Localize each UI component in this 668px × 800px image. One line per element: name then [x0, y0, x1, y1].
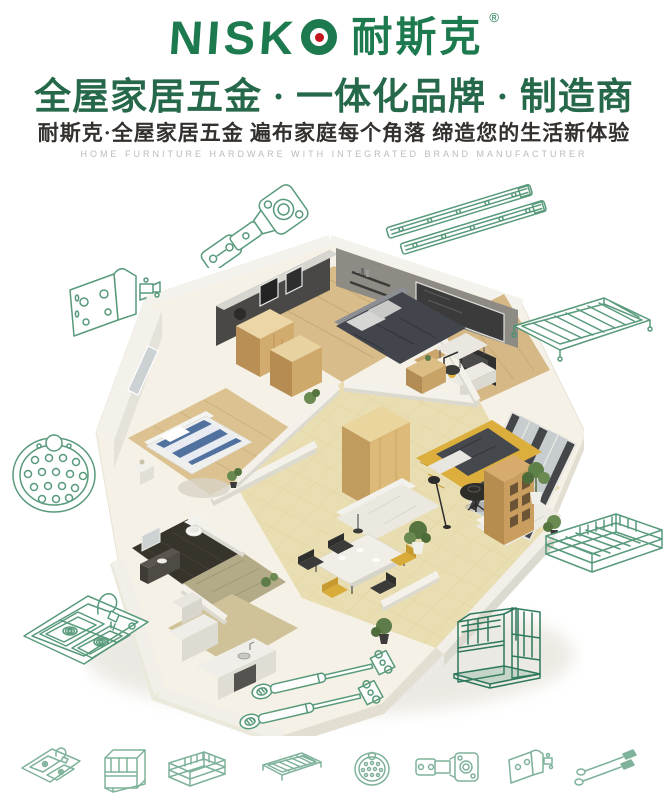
logo-o-mark [301, 19, 337, 55]
wire-shelf-illustration [506, 290, 658, 378]
wire-basket-icon [167, 748, 227, 788]
sink-icon [20, 744, 82, 792]
main-headline: 全屋家居五金 · 一体化品牌 · 制造商 [0, 66, 668, 120]
sink-illustration [16, 584, 154, 700]
brand-logo: NISK 耐斯克 ® [0, 10, 668, 64]
corner-bracket-illustration [56, 262, 170, 348]
wire-basket-illustration [540, 506, 668, 586]
logo-red-dot-icon [315, 33, 324, 42]
registered-trademark-symbol: ® [489, 10, 499, 25]
brand-chinese-name: 耐斯克 [351, 17, 483, 58]
wire-organizer-illustration [448, 586, 546, 694]
concealed-hinge-illustration [170, 182, 328, 268]
hinge-icon [414, 750, 480, 784]
wire-organizer-icon [99, 742, 151, 794]
english-tagline: HOME FURNITURE HARDWARE WITH INTEGRATED … [0, 149, 668, 159]
sub-headline: 耐斯克·全屋家居五金 遍布家庭每个角落 缔造您的生活新体验 [0, 117, 668, 147]
brand-wordmark: NISK [167, 14, 299, 61]
poster: NISK 耐斯克 ® 全屋家居五金 · 一体化品牌 · 制造商 耐斯克·全屋家居… [0, 0, 668, 800]
perforated-plate-illustration [6, 424, 102, 518]
bracket-icon [503, 748, 555, 786]
wire-shelf-icon [261, 750, 323, 784]
gas-struts-icon [573, 744, 641, 788]
gas-struts-illustration [236, 650, 434, 732]
drawer-slides-illustration [378, 182, 556, 256]
perforated-plate-icon [352, 748, 392, 788]
